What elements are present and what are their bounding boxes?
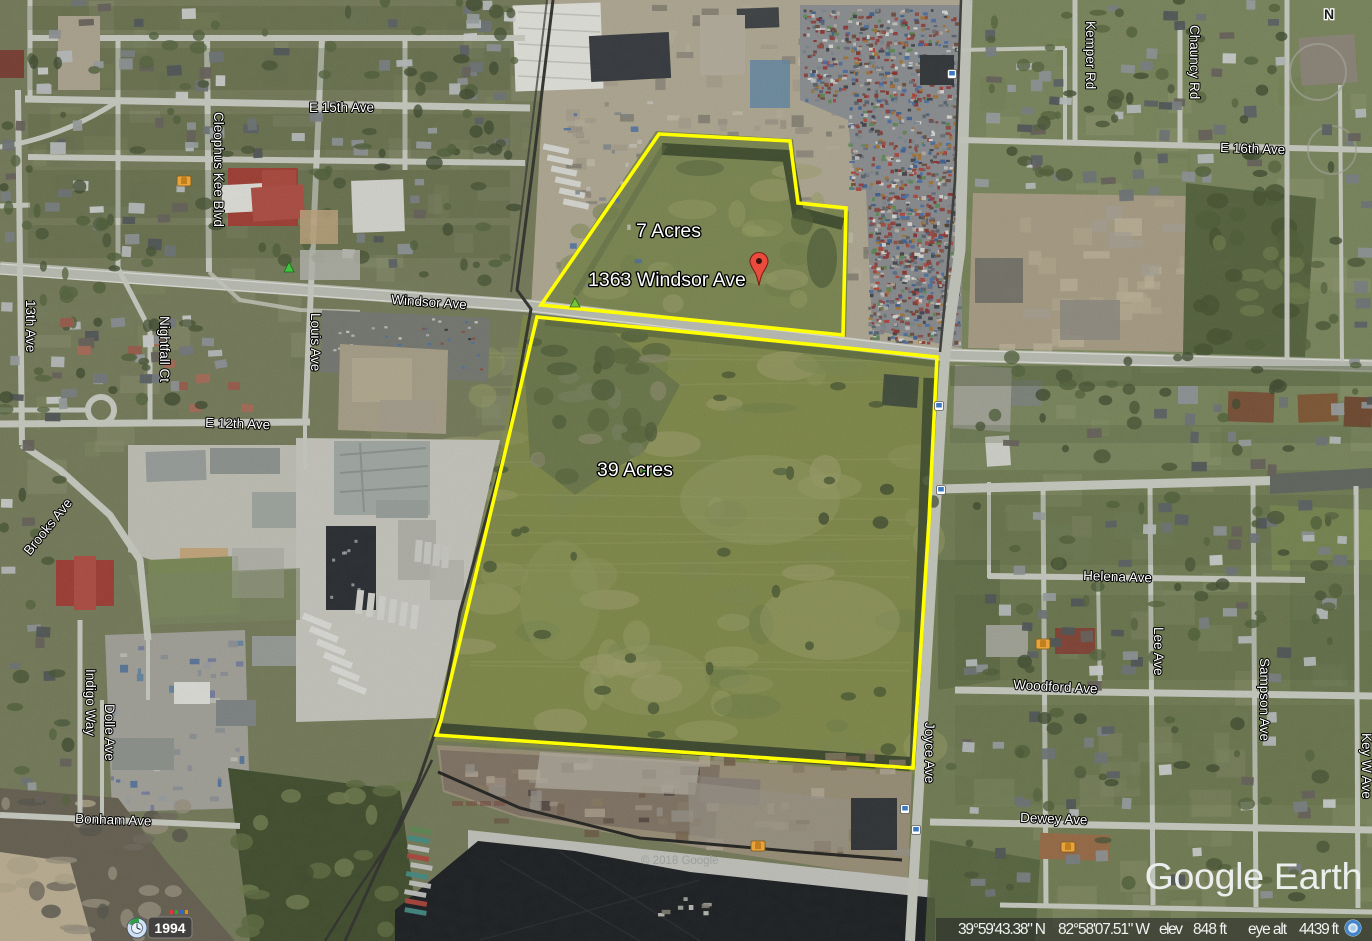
svg-text:Key W Ave: Key W Ave [1359, 733, 1372, 799]
svg-text:E 15th Ave: E 15th Ave [309, 100, 374, 115]
svg-text:Bonham Ave: Bonham Ave [75, 811, 152, 829]
svg-text:E 12th Ave: E 12th Ave [205, 415, 271, 432]
svg-text:Helena Ave: Helena Ave [1083, 568, 1152, 585]
svg-text:Louis Ave: Louis Ave [308, 313, 323, 371]
svg-text:Sampson Ave: Sampson Ave [1257, 658, 1272, 741]
svg-text:Lee Ave: Lee Ave [1151, 627, 1166, 676]
svg-text:Google Earth: Google Earth [1145, 855, 1362, 897]
svg-text:Kemper Rd: Kemper Rd [1083, 21, 1098, 89]
svg-text:1363 Windsor Ave: 1363 Windsor Ave [588, 269, 746, 291]
svg-text:Cleophus Kee Blvd: Cleophus Kee Blvd [211, 112, 226, 227]
svg-text:1994: 1994 [154, 920, 185, 936]
svg-text:N: N [1324, 6, 1334, 22]
svg-text:Dolle Ave: Dolle Ave [102, 704, 117, 761]
svg-text:39 Acres: 39 Acres [597, 459, 673, 481]
svg-text:E 16th Ave: E 16th Ave [1220, 140, 1286, 157]
svg-text:Chauncy Rd: Chauncy Rd [1187, 25, 1202, 99]
svg-text:Joyce Ave: Joyce Ave [922, 722, 937, 783]
svg-text:13th Ave: 13th Ave [23, 300, 38, 352]
svg-text:7 Acres: 7 Acres [636, 220, 701, 242]
svg-text:Nightfall Ct: Nightfall Ct [157, 316, 172, 382]
svg-text:© 2018 Google: © 2018 Google [641, 855, 719, 867]
svg-text:Indigo Way: Indigo Way [83, 669, 98, 736]
svg-text:Dewey Ave: Dewey Ave [1020, 810, 1088, 827]
svg-text:39°59'43.38" N82°58'07.51" Wel: 39°59'43.38" N82°58'07.51" Welev848 ftey… [958, 921, 1340, 938]
